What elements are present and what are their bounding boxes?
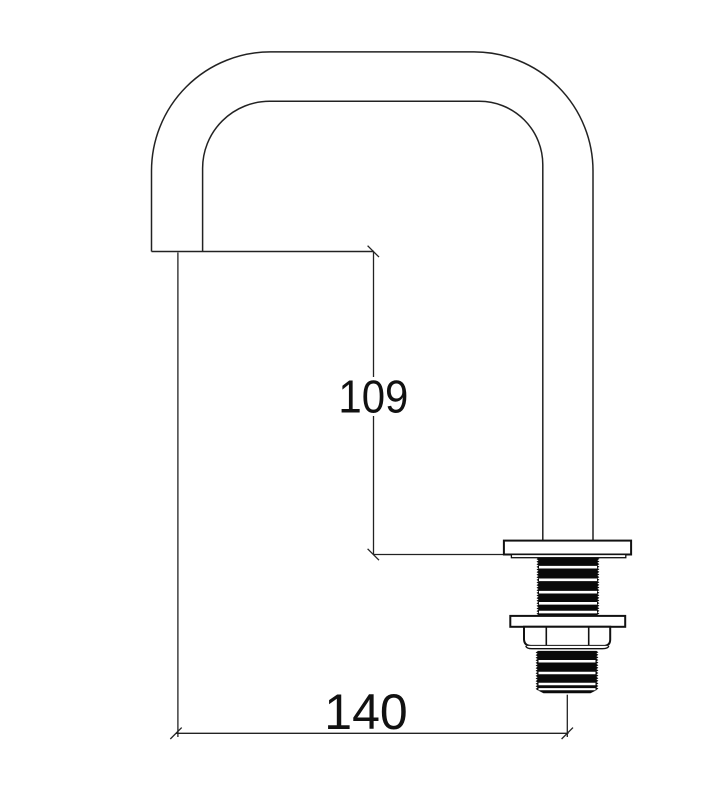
svg-text:109: 109 (338, 371, 408, 423)
svg-text:140: 140 (324, 684, 407, 740)
